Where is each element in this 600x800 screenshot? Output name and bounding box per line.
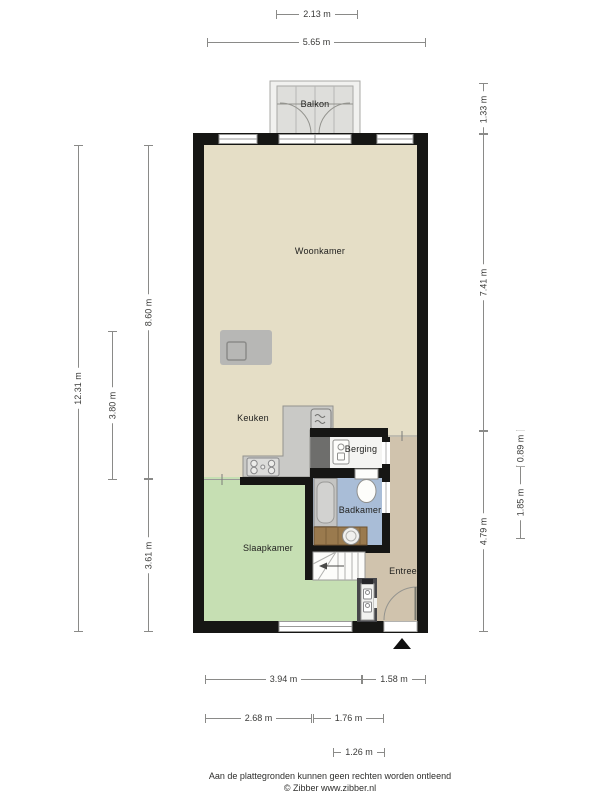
toilet-icon (355, 469, 378, 503)
dimension-bottom-mid-segment: 1.76 m (313, 714, 384, 723)
dimension-label: 5.65 m (299, 38, 335, 47)
dimension-label: 0.89 m (516, 431, 525, 467)
dimension-top-total-width: 5.65 m (207, 38, 426, 47)
footer-credit: © Zibber www.zibber.nl (60, 782, 600, 794)
dimension-bottom-stairs-width: 1.26 m (333, 748, 385, 757)
shaft (310, 437, 330, 468)
dimension-label: 2.13 m (299, 10, 335, 19)
dimension-label: 1.26 m (341, 748, 377, 757)
window-bottom (279, 622, 352, 632)
dimension-label: 3.61 m (144, 537, 153, 573)
room-label-keuken: Keuken (237, 413, 269, 423)
dimension-top-balcony: 2.13 m (276, 10, 358, 19)
room-label-woonkamer: Woonkamer (295, 246, 345, 256)
balcony-door-threshold (279, 135, 351, 144)
dimension-right-balcony-depth: 1.33 m (479, 83, 488, 135)
dimension-label: 8.60 m (144, 295, 153, 331)
berging-door (382, 442, 390, 464)
room-label-badkamer: Badkamer (339, 505, 382, 515)
floor-entree (388, 437, 418, 622)
floorplan-canvas: Balkon Woonkamer Keuken Berging Badkamer… (0, 0, 600, 800)
window-top-left (219, 135, 257, 144)
badkamer-door (382, 482, 390, 513)
front-door-threshold (384, 622, 417, 632)
window-top-right (377, 135, 413, 144)
floor-slaapkamer-ext (305, 580, 357, 621)
dimension-label: 4.79 m (479, 513, 488, 549)
footer: Aan de plattegronden kunnen geen rechten… (60, 770, 600, 794)
dimension-label: 2.68 m (241, 714, 277, 723)
entrance-marker-icon (393, 638, 411, 649)
footer-disclaimer: Aan de plattegronden kunnen geen rechten… (60, 770, 600, 782)
meter-cupboard (357, 578, 377, 622)
dimension-left-living: 8.60 m (144, 145, 153, 480)
washing-machine-icon (311, 409, 331, 430)
dimension-right-bathroom-depth: 1.85 m (516, 465, 525, 539)
dimension-right-hall-depth: 4.79 m (479, 430, 488, 632)
room-label-entree: Entree (389, 566, 417, 576)
dimension-left-kitchen: 3.80 m (108, 331, 117, 480)
staircase (313, 552, 365, 580)
bathtub-icon (314, 479, 337, 527)
sink-icon (314, 527, 367, 545)
dimension-right-storage-depth: 0.89 m (516, 430, 525, 467)
room-label-balkon: Balkon (301, 99, 330, 109)
dimension-label: 1.33 m (479, 91, 488, 127)
dimension-bottom-left-segment: 2.68 m (205, 714, 312, 723)
room-label-berging: Berging (345, 444, 377, 454)
dimension-label: 7.41 m (479, 265, 488, 301)
dimension-label: 1.58 m (376, 675, 412, 684)
fireplace-unit (220, 330, 272, 365)
dimension-label: 1.76 m (331, 714, 367, 723)
dimension-bottom-bedroom-width: 3.94 m (205, 675, 362, 684)
dimension-label: 1.85 m (516, 484, 525, 520)
dimension-label: 3.80 m (108, 388, 117, 424)
dimension-left-bedroom: 3.61 m (144, 478, 153, 632)
dimension-label: 3.94 m (266, 675, 302, 684)
stove-icon (247, 458, 279, 476)
dimension-bottom-entry-width: 1.58 m (362, 675, 426, 684)
dimension-label: 12.31 m (74, 368, 83, 409)
dimension-right-living-depth: 7.41 m (479, 133, 488, 432)
room-label-slaapkamer: Slaapkamer (243, 543, 293, 553)
dimension-left-total-height: 12.31 m (74, 145, 83, 632)
